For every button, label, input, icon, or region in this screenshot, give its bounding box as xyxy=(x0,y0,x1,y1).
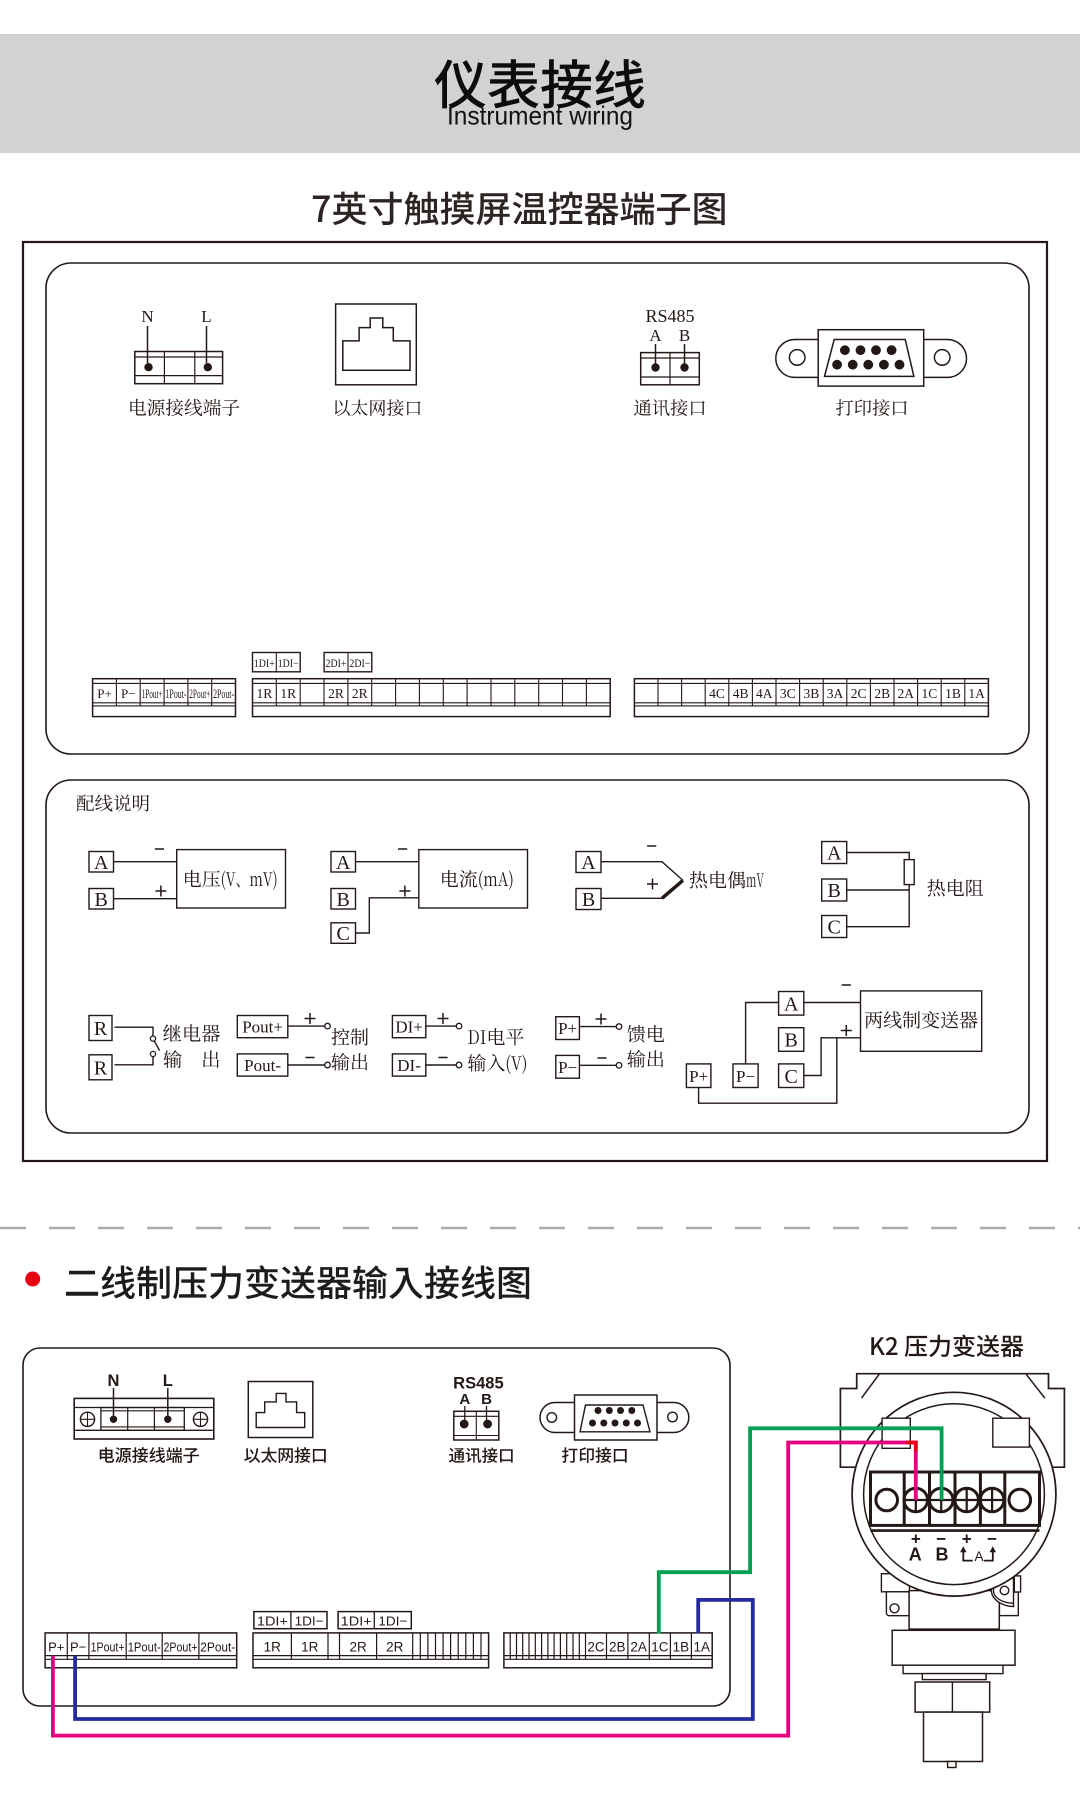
svg-text:Instrument wiring: Instrument wiring xyxy=(447,101,633,131)
svg-text:1DI+: 1DI+ xyxy=(257,1613,288,1628)
svg-text:A: A xyxy=(459,1391,470,1408)
svg-text:2Pout+: 2Pout+ xyxy=(189,686,210,701)
svg-text:1A: 1A xyxy=(694,1640,711,1655)
svg-text:1DI−: 1DI− xyxy=(378,1613,407,1628)
svg-text:2C: 2C xyxy=(851,686,867,701)
svg-text:A: A xyxy=(784,994,799,1016)
svg-text:B: B xyxy=(481,1391,492,1408)
svg-text:2Pout-: 2Pout- xyxy=(213,686,234,701)
svg-text:Pout-: Pout- xyxy=(244,1056,281,1075)
svg-text:L: L xyxy=(201,307,211,326)
svg-text:1Pout+: 1Pout+ xyxy=(142,686,163,701)
svg-text:A: A xyxy=(827,843,842,865)
svg-text:1R: 1R xyxy=(264,1640,282,1655)
svg-text:P+: P+ xyxy=(558,1019,577,1038)
svg-text:C: C xyxy=(785,1066,798,1088)
svg-text:1B: 1B xyxy=(945,686,961,701)
svg-text:N: N xyxy=(141,307,153,326)
svg-text:2R: 2R xyxy=(352,686,368,701)
svg-text:4C: 4C xyxy=(709,686,725,701)
svg-text:2DI−: 2DI− xyxy=(349,658,370,670)
svg-text:A: A xyxy=(909,1545,922,1565)
svg-text:1DI+: 1DI+ xyxy=(254,658,275,670)
svg-text:A: A xyxy=(336,852,351,874)
svg-text:P−: P− xyxy=(558,1058,577,1077)
svg-text:P−: P− xyxy=(121,686,136,701)
svg-text:L: L xyxy=(163,1372,173,1390)
svg-text:2C: 2C xyxy=(587,1640,605,1655)
svg-text:3A: 3A xyxy=(827,686,844,701)
svg-text:A: A xyxy=(94,852,109,874)
svg-text:2R: 2R xyxy=(328,686,344,701)
svg-text:1C: 1C xyxy=(922,686,938,701)
svg-text:2R: 2R xyxy=(386,1640,404,1655)
svg-text:C: C xyxy=(828,917,841,939)
svg-text:1R: 1R xyxy=(257,686,273,701)
svg-text:3B: 3B xyxy=(804,686,820,701)
svg-text:P+: P+ xyxy=(48,1640,64,1655)
svg-text:A: A xyxy=(581,852,596,874)
svg-text:B: B xyxy=(337,889,350,911)
svg-text:DI-: DI- xyxy=(397,1056,421,1075)
svg-text:RS485: RS485 xyxy=(645,306,694,326)
svg-text:2A: 2A xyxy=(898,686,915,701)
svg-text:1Pout-: 1Pout- xyxy=(166,686,187,701)
svg-text:RS485: RS485 xyxy=(453,1375,503,1393)
svg-text:Pout+: Pout+ xyxy=(242,1018,283,1037)
svg-text:1B: 1B xyxy=(673,1640,690,1655)
svg-text:−: − xyxy=(987,1530,997,1549)
svg-text:2B: 2B xyxy=(874,686,890,701)
svg-text:+: + xyxy=(962,1530,972,1549)
svg-text:2A: 2A xyxy=(630,1640,647,1655)
svg-text:B: B xyxy=(582,889,595,911)
svg-text:B: B xyxy=(828,880,841,902)
svg-text:1C: 1C xyxy=(651,1640,669,1655)
svg-text:B: B xyxy=(936,1545,949,1565)
svg-text:N: N xyxy=(108,1372,120,1390)
svg-text:2B: 2B xyxy=(609,1640,626,1655)
svg-text:B: B xyxy=(95,889,108,911)
svg-text:R: R xyxy=(94,1058,108,1080)
svg-text:1DI+: 1DI+ xyxy=(341,1613,372,1628)
svg-text:P−: P− xyxy=(736,1067,755,1086)
svg-text:4A: 4A xyxy=(756,686,773,701)
svg-text:A: A xyxy=(974,1549,983,1564)
svg-text:P+: P+ xyxy=(689,1067,708,1086)
svg-text:B: B xyxy=(679,326,690,345)
svg-text:2R: 2R xyxy=(349,1640,367,1655)
svg-text:4B: 4B xyxy=(733,686,749,701)
svg-text:P−: P− xyxy=(70,1640,86,1655)
svg-text:1A: 1A xyxy=(968,686,985,701)
svg-text:1DI−: 1DI− xyxy=(278,658,299,670)
svg-text:R: R xyxy=(94,1018,108,1040)
svg-text:1Pout+: 1Pout+ xyxy=(91,1640,125,1655)
svg-text:2Pout-: 2Pout- xyxy=(200,1640,235,1655)
svg-text:2Pout+: 2Pout+ xyxy=(164,1640,198,1655)
svg-text:3C: 3C xyxy=(780,686,796,701)
svg-text:1DI−: 1DI− xyxy=(295,1613,324,1628)
svg-text:1R: 1R xyxy=(280,686,296,701)
svg-text:B: B xyxy=(785,1030,798,1052)
svg-text:1R: 1R xyxy=(301,1640,319,1655)
svg-text:1Pout-: 1Pout- xyxy=(128,1640,161,1655)
svg-text:C: C xyxy=(337,923,350,945)
svg-text:P+: P+ xyxy=(97,686,112,701)
svg-text:2DI+: 2DI+ xyxy=(326,658,347,670)
svg-text:A: A xyxy=(649,326,662,345)
svg-text:DI+: DI+ xyxy=(395,1018,423,1037)
